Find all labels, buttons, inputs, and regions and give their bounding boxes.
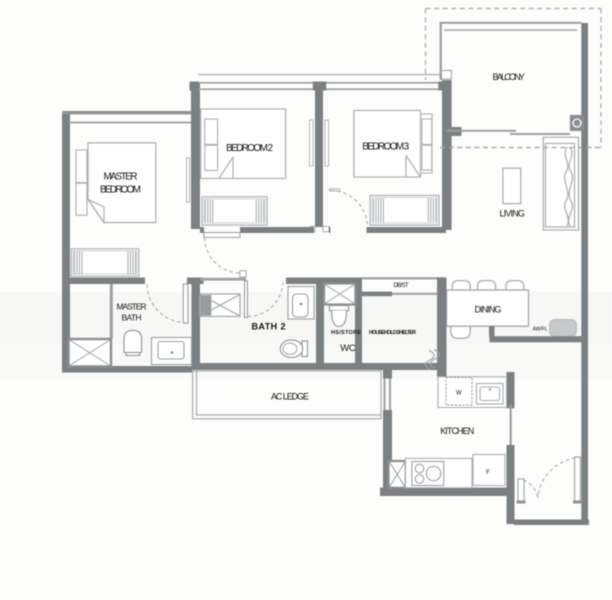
- svg-text:BEDROOM 2: BEDROOM 2: [226, 143, 273, 154]
- svg-text:BEDROOM 3: BEDROOM 3: [362, 142, 409, 153]
- svg-text:MASTER: MASTER: [104, 172, 138, 183]
- svg-text:LIVING: LIVING: [499, 208, 525, 218]
- svg-text:HS/STORE: HS/STORE: [331, 330, 361, 336]
- svg-text:AC LEDGE: AC LEDGE: [271, 392, 309, 402]
- svg-text:HOUSEHOLD SHELTER: HOUSEHOLD SHELTER: [369, 330, 416, 336]
- svg-text:F: F: [486, 470, 490, 476]
- svg-text:KITCHEN: KITCHEN: [440, 426, 474, 436]
- svg-text:BALCONY: BALCONY: [492, 72, 525, 82]
- svg-text:AW/FL: AW/FL: [533, 327, 548, 333]
- svg-text:WC: WC: [340, 343, 356, 354]
- svg-text:DINING: DINING: [475, 305, 502, 315]
- svg-text:MASTER: MASTER: [117, 302, 147, 312]
- svg-text:BEDROOM: BEDROOM: [100, 185, 141, 196]
- svg-text:BATH: BATH: [122, 313, 142, 323]
- svg-text:BATH 2: BATH 2: [252, 322, 286, 332]
- svg-text:W: W: [456, 391, 462, 397]
- svg-text:DB/ST: DB/ST: [394, 283, 409, 289]
